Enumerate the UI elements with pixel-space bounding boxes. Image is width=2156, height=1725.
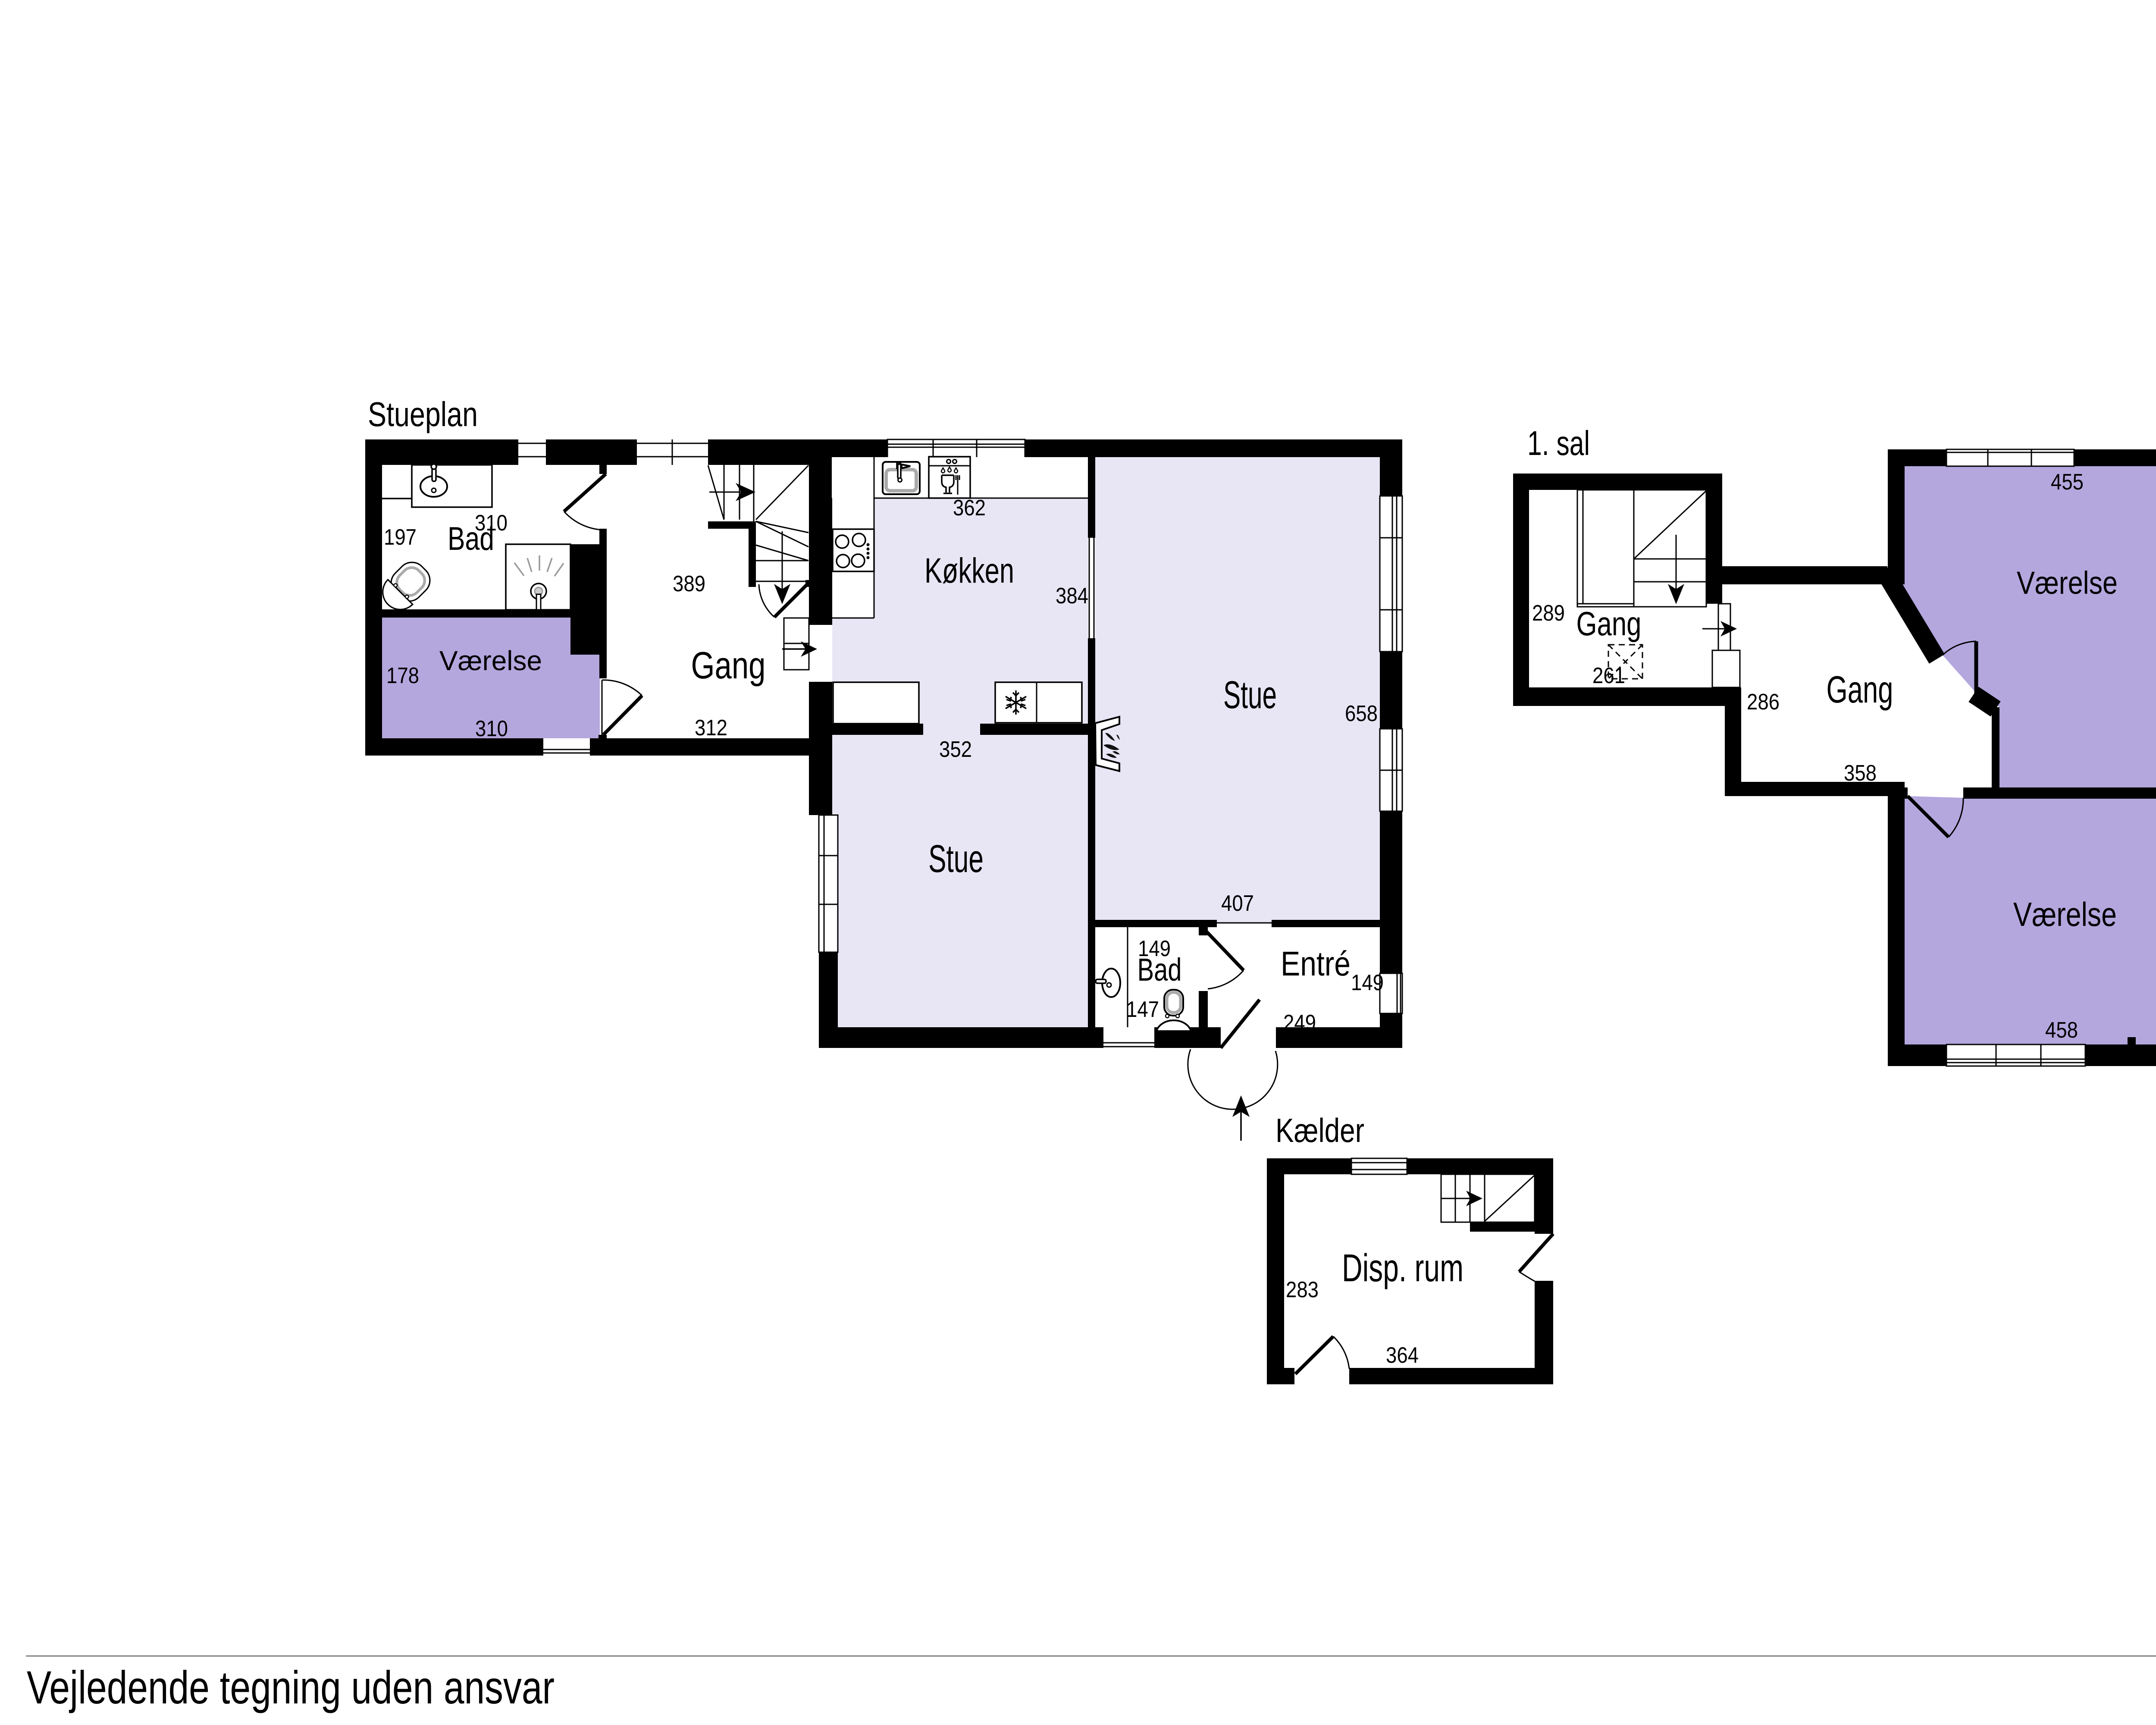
svg-text:312: 312 (695, 715, 727, 740)
svg-text:149: 149 (1351, 970, 1384, 995)
svg-text:658: 658 (1345, 701, 1378, 726)
svg-text:358: 358 (1844, 761, 1877, 786)
svg-text:Værelse: Værelse (439, 645, 542, 676)
svg-text:Gang: Gang (1827, 668, 1893, 711)
svg-text:Gang: Gang (691, 644, 766, 687)
svg-text:Vejledende tegning uden ansvar: Vejledende tegning uden ansvar (27, 1661, 555, 1713)
svg-text:Kælder: Kælder (1275, 1111, 1364, 1149)
svg-text:362: 362 (953, 496, 986, 521)
svg-text:249: 249 (1283, 1010, 1316, 1035)
svg-text:Køkken: Køkken (924, 551, 1014, 590)
svg-text:261: 261 (1592, 663, 1625, 688)
svg-text:Gang: Gang (1576, 605, 1642, 643)
svg-text:352: 352 (939, 737, 972, 762)
svg-text:Værelse: Værelse (2013, 895, 2117, 933)
svg-text:147: 147 (1126, 997, 1159, 1022)
svg-text:458: 458 (2045, 1018, 2078, 1043)
svg-text:Stue: Stue (928, 837, 984, 881)
svg-text:Værelse: Værelse (2017, 565, 2118, 601)
svg-text:197: 197 (384, 525, 417, 550)
svg-text:310: 310 (475, 511, 508, 536)
svg-text:289: 289 (1532, 601, 1565, 626)
svg-text:286: 286 (1747, 690, 1780, 715)
svg-text:384: 384 (1056, 583, 1088, 608)
svg-text:Entré: Entré (1281, 944, 1351, 983)
svg-text:389: 389 (673, 571, 705, 596)
svg-text:Stue: Stue (1223, 674, 1277, 717)
svg-text:1. sal: 1. sal (1527, 424, 1590, 462)
svg-text:178: 178 (386, 663, 419, 688)
svg-text:283: 283 (1286, 1277, 1319, 1302)
svg-text:407: 407 (1221, 891, 1254, 916)
svg-text:310: 310 (475, 716, 508, 741)
svg-text:364: 364 (1386, 1343, 1419, 1368)
svg-text:149: 149 (1138, 936, 1171, 961)
svg-text:Disp. rum: Disp. rum (1342, 1247, 1463, 1290)
svg-text:Stueplan: Stueplan (368, 395, 478, 433)
svg-text:455: 455 (2051, 470, 2084, 495)
